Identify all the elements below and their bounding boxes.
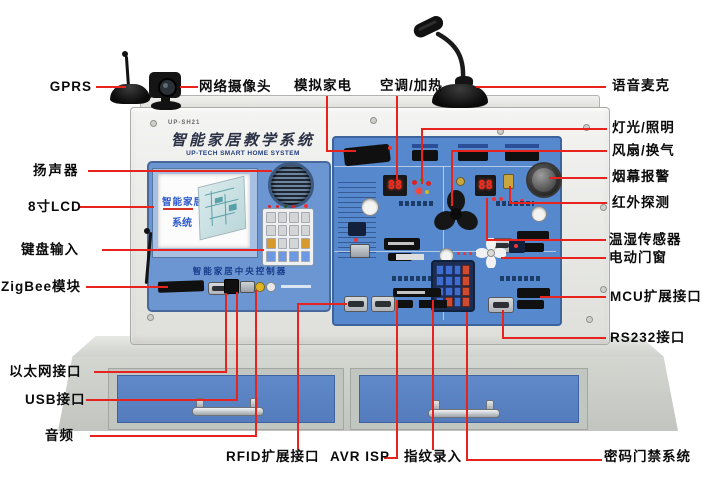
module-text xyxy=(388,242,414,245)
callout-line-temp xyxy=(486,239,606,241)
temp-humidity-display: 88 xyxy=(475,175,496,196)
callout-label-fingerprint: 指纹录入 xyxy=(404,449,462,464)
callout-line-smoke xyxy=(549,177,607,179)
callout-label-camera: 网络摄像头 xyxy=(199,79,272,94)
screw xyxy=(150,120,157,127)
callout-line-door-access xyxy=(466,312,468,461)
callout-line-fingerprint xyxy=(432,300,434,450)
callout-label-voice-mic: 语音麦克 xyxy=(612,78,670,93)
callout-label-door-access: 密码门禁系统 xyxy=(604,449,691,464)
lcd-text-2: 系统 xyxy=(172,214,192,229)
usb-port xyxy=(350,244,370,258)
device-subtitle: UP-TECH SMART HOME SYSTEM xyxy=(148,150,338,157)
callout-label-ac-heat: 空调/加热 xyxy=(380,78,443,93)
lcd-red-text xyxy=(163,208,193,210)
callout-line-ethernet xyxy=(94,371,227,373)
module-label xyxy=(458,144,488,148)
callout-label-window: 电动门窗 xyxy=(609,250,667,265)
led xyxy=(276,205,279,208)
relay-module xyxy=(412,150,438,161)
panel-caption: 智能家居中央控制器 xyxy=(152,265,328,277)
callout-line-lcd xyxy=(78,206,154,208)
callout-label-rs232: RS232接口 xyxy=(610,330,685,345)
camera-stand xyxy=(151,101,181,110)
callout-label-keypad: 键盘输入 xyxy=(21,242,79,257)
callout-line-rs232 xyxy=(502,337,606,339)
callout-label-speaker: 扬声器 xyxy=(33,163,80,178)
callout-label-lcd: 8寸LCD xyxy=(28,199,82,214)
led xyxy=(426,181,431,186)
callout-line-ir xyxy=(509,202,607,204)
model-number: UP-SH21 xyxy=(168,120,200,126)
callout-label-audio: 音频 xyxy=(45,428,74,443)
buzzer-button xyxy=(531,206,547,222)
smart-home-training-figure: UP-SH21 智能家居教学系统 UP-TECH SMART HOME SYST… xyxy=(0,0,703,478)
ventilation-fan-blade xyxy=(432,190,480,238)
callout-label-mcu: MCU扩展接口 xyxy=(610,289,702,304)
callout-line-camera xyxy=(180,86,198,88)
callout-label-zigbee: ZigBee模块 xyxy=(1,279,81,294)
callout-line-light xyxy=(421,128,607,130)
callout-label-light: 灯光/照明 xyxy=(612,120,675,135)
callout-label-smoke: 烟幕报警 xyxy=(612,169,670,184)
callout-label-sim-appliance: 模拟家电 xyxy=(294,78,352,93)
led xyxy=(469,252,472,255)
mcu-expansion-header xyxy=(517,300,544,309)
callout-line-window xyxy=(501,257,606,259)
callout-label-usb: USB接口 xyxy=(25,392,86,407)
screw xyxy=(600,204,607,211)
led xyxy=(457,252,460,255)
callout-line-audio xyxy=(90,435,257,437)
speaker-grille xyxy=(268,162,314,208)
drawer-right xyxy=(350,368,588,430)
callout-line-usb xyxy=(86,399,238,401)
usb-port xyxy=(240,281,255,293)
led xyxy=(268,205,271,208)
callout-line-ethernet xyxy=(225,293,227,373)
callout-label-gprs: GPRS xyxy=(30,79,92,94)
buzzer-button xyxy=(361,198,379,216)
camera-lens xyxy=(163,83,168,88)
screw xyxy=(586,316,593,323)
callout-line-sim-appliance xyxy=(326,96,328,152)
led xyxy=(388,146,392,150)
led xyxy=(425,190,429,194)
section-title-text xyxy=(392,276,432,281)
callout-line-light xyxy=(421,128,423,184)
led xyxy=(412,180,417,185)
led xyxy=(514,244,518,248)
section-title-text xyxy=(500,276,540,281)
callout-line-gprs xyxy=(96,86,126,88)
callout-line-sim-appliance xyxy=(326,150,356,152)
sensor xyxy=(456,177,465,186)
callout-line-voice-mic xyxy=(476,86,606,88)
led xyxy=(463,252,466,255)
port-label-text xyxy=(281,285,311,288)
module-label xyxy=(505,144,539,148)
window-motor-fan xyxy=(476,238,506,268)
callout-label-avr-isp: AVR ISP xyxy=(330,449,390,464)
callout-label-rfid: RFID扩展接口 xyxy=(226,449,320,464)
toggle-module xyxy=(348,222,366,236)
screw xyxy=(600,286,607,293)
section-title-text xyxy=(399,201,435,206)
camera-lens xyxy=(158,78,177,97)
callout-line-door-access xyxy=(466,459,602,461)
screw xyxy=(147,314,154,321)
callout-line-keypad xyxy=(102,249,264,251)
serial-port xyxy=(344,296,368,312)
callout-label-ir: 红外探测 xyxy=(612,195,670,210)
callout-line-mcu xyxy=(540,296,606,298)
header-connector xyxy=(396,300,413,308)
callout-line-zigbee xyxy=(86,286,168,288)
ac-heat-display: 88 xyxy=(383,175,407,196)
callout-line-ac-heat xyxy=(396,96,398,180)
module-text xyxy=(397,291,425,294)
rfid-label-bar xyxy=(396,254,424,260)
led xyxy=(354,238,358,242)
screw xyxy=(370,117,377,124)
callout-line-speaker xyxy=(88,170,272,172)
smoke-detector xyxy=(526,162,562,198)
led xyxy=(304,204,308,208)
callout-line-fan xyxy=(451,150,453,206)
serial-port xyxy=(488,297,514,313)
drawer-right-handle xyxy=(428,409,500,418)
callout-line-temp xyxy=(486,198,488,241)
callout-line-audio xyxy=(255,290,257,437)
callout-label-ethernet: 以太网接口 xyxy=(9,364,82,379)
callout-label-temp: 温湿传感器 xyxy=(609,232,682,247)
callout-line-usb xyxy=(236,292,238,401)
drawer-left-handle xyxy=(192,407,264,416)
callout-line-rfid xyxy=(297,303,299,450)
system-keypad xyxy=(262,208,314,266)
audio-jack xyxy=(266,282,276,292)
lighting-led xyxy=(416,188,422,194)
callout-label-fan: 风扇/换气 xyxy=(612,143,675,158)
callout-line-avr-isp xyxy=(396,300,398,459)
led xyxy=(292,205,295,208)
callout-line-fan xyxy=(451,150,607,152)
serial-port xyxy=(371,296,395,312)
callout-line-rs232 xyxy=(502,310,504,339)
module-label xyxy=(412,144,438,148)
panel-divider xyxy=(334,166,556,167)
led xyxy=(284,205,287,208)
device-title: 智能家居教学系统 xyxy=(148,129,338,150)
callout-line-rfid xyxy=(297,303,347,305)
